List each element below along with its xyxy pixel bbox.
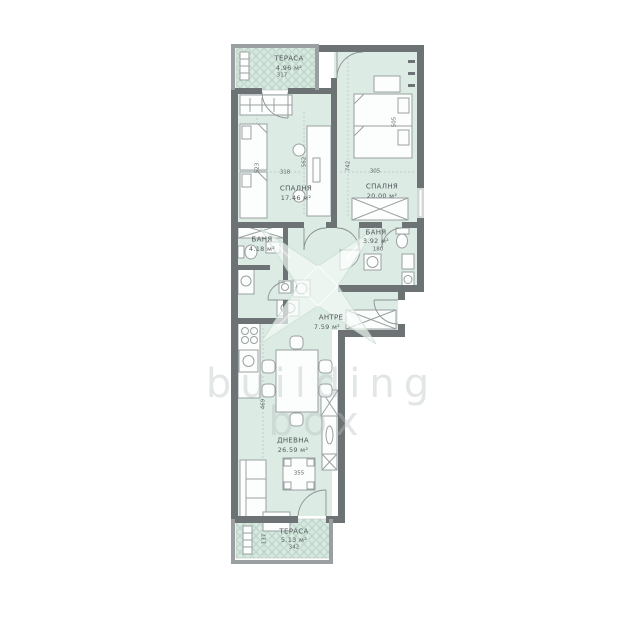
wardrobe-left-bedroom bbox=[240, 95, 292, 115]
sofa bbox=[240, 460, 266, 518]
dim-bedroom-right-width: 305 bbox=[370, 169, 381, 175]
utility-sink bbox=[238, 268, 254, 294]
desk bbox=[307, 126, 331, 216]
dim-bedroom-right-bed: 505 bbox=[392, 117, 398, 128]
cabinet-x bbox=[322, 454, 337, 470]
desk-chair-1 bbox=[293, 144, 305, 156]
room-area-bath-left: 4.18 м² bbox=[249, 246, 275, 253]
room-area-bedroom-left: 17.46 м² bbox=[281, 195, 312, 202]
room-area-bedroom-right: 20.00 м² bbox=[367, 193, 398, 200]
room-area-terrace-top: 4.96 м² bbox=[276, 65, 302, 72]
bath-cabinet-2 bbox=[402, 272, 414, 287]
wardrobe-right-bedroom bbox=[352, 198, 408, 220]
basin-right-bath bbox=[364, 254, 381, 270]
dim-bath-right-width: 180 bbox=[373, 247, 384, 253]
double-bed bbox=[354, 94, 412, 158]
room-number-terrace-top: 317 bbox=[277, 73, 288, 79]
toilet-right-bath bbox=[396, 228, 409, 248]
window bbox=[417, 188, 424, 218]
dim-bedroom-right-height: 742 bbox=[346, 161, 352, 172]
room-label-bedroom-right: СПАЛНЯ bbox=[366, 184, 398, 191]
room-label-living: ДНЕВНА bbox=[277, 438, 309, 445]
floor-plan-drawing bbox=[0, 0, 633, 633]
room-label-bath-left: БАНЯ bbox=[252, 237, 273, 244]
dining-chair bbox=[290, 336, 303, 349]
room-area-hall: 7.59 м² bbox=[314, 324, 340, 331]
dim-coffee-table: 355 bbox=[294, 471, 305, 477]
room-label-terrace-bottom: ТЕРАСА bbox=[279, 529, 308, 536]
dim-kitchen-height: 469 bbox=[261, 399, 267, 410]
dim-bedroom-left-desk: 562 bbox=[302, 157, 308, 168]
dim-bedroom-left-width: 318 bbox=[280, 170, 291, 176]
nightstand bbox=[374, 76, 400, 92]
floor-plan-page: building box ТЕРАСА 4.96 м² 317 523 562 … bbox=[0, 0, 633, 633]
room-number-terrace-bottom: 342 bbox=[289, 545, 300, 551]
bed-single-2 bbox=[240, 172, 267, 218]
bath-cabinet-1 bbox=[402, 254, 414, 269]
terrace-planter-top bbox=[240, 52, 249, 80]
room-label-terrace-top: ТЕРАСА bbox=[274, 56, 303, 63]
room-area-living: 26.59 м² bbox=[278, 447, 309, 454]
room-area-bath-right: 3.92 м² bbox=[363, 238, 389, 245]
room-label-bedroom-left: СПАЛНЯ bbox=[280, 186, 312, 193]
dim-terrace-bottom-height: 137 bbox=[262, 534, 268, 545]
dim-bedroom-left-height: 523 bbox=[255, 163, 261, 174]
room-label-hall: АНТРЕ bbox=[319, 315, 343, 322]
room-area-terrace-bottom: 5.13 м² bbox=[281, 537, 307, 544]
terrace-planter-bottom bbox=[243, 526, 252, 554]
room-label-bath-right: БАНЯ bbox=[366, 230, 387, 237]
